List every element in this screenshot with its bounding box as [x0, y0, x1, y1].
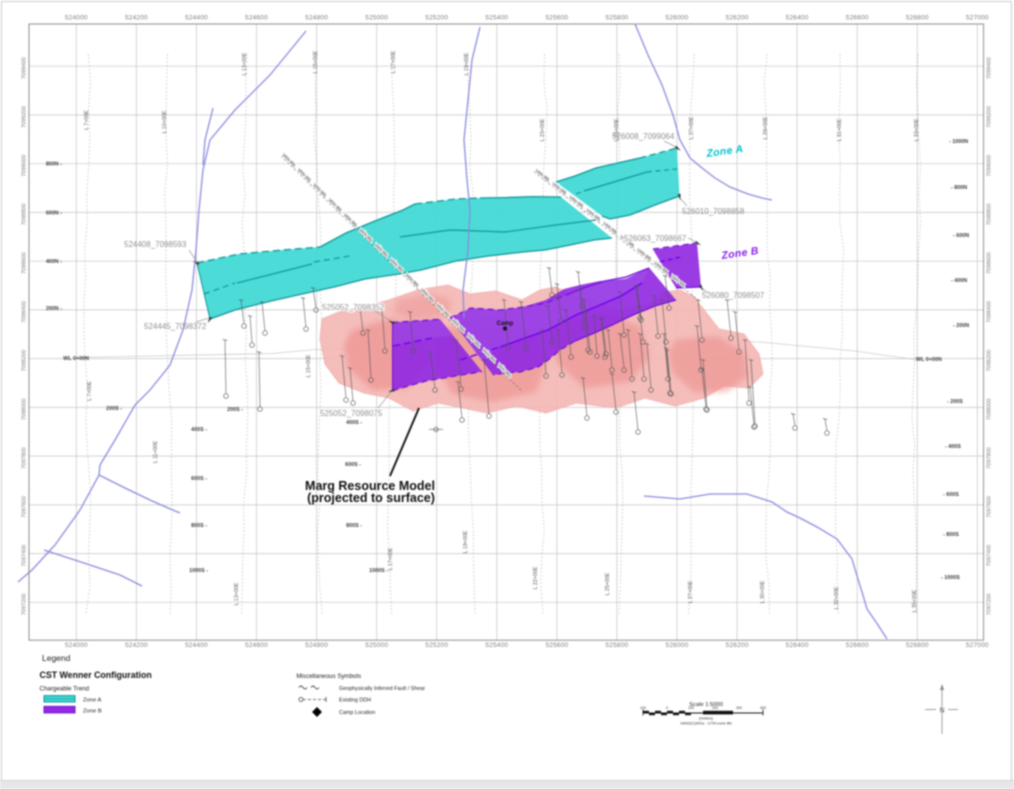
svg-text:525600: 525600 [545, 642, 568, 649]
svg-text:L 17+00E: L 17+00E [391, 50, 397, 73]
svg-text:7099200: 7099200 [21, 106, 27, 128]
svg-text:525400: 525400 [485, 642, 508, 649]
svg-text:CST Wenner Configuration: CST Wenner Configuration [40, 670, 152, 680]
svg-text:L 25+00E: L 25+00E [605, 572, 611, 595]
svg-text:Existing DDH: Existing DDH [339, 698, 371, 704]
svg-text:- 800S: - 800S [943, 532, 959, 538]
svg-text:526200: 526200 [726, 642, 749, 649]
svg-text:526000: 526000 [666, 642, 689, 649]
svg-text:VAN2(C)WGs - UTM zone 8N: VAN2(C)WGs - UTM zone 8N [680, 721, 732, 726]
svg-text:7098600: 7098600 [987, 252, 993, 274]
svg-text:L 33+00E: L 33+00E [914, 118, 920, 141]
svg-text:525400: 525400 [485, 15, 508, 22]
svg-text:7098800: 7098800 [986, 204, 992, 226]
svg-text:600S -: 600S - [345, 462, 361, 468]
svg-text:400S -: 400S - [346, 420, 362, 426]
svg-text:7098400: 7098400 [22, 301, 28, 323]
svg-text:525000: 525000 [365, 642, 388, 649]
svg-text:L 7+00E: L 7+00E [87, 381, 93, 401]
svg-text:524400: 524400 [185, 642, 208, 649]
svg-text:L 32+00E: L 32+00E [834, 586, 840, 609]
svg-text:7099000: 7099000 [22, 155, 28, 177]
svg-text:524200: 524200 [125, 15, 148, 22]
svg-text:L 11+00E: L 11+00E [153, 440, 159, 463]
svg-text:- 600S: - 600S [943, 492, 959, 498]
svg-text:L 29+00E: L 29+00E [763, 116, 769, 139]
svg-text:7099200: 7099200 [986, 106, 992, 128]
svg-text:L 7+00E: L 7+00E [84, 110, 90, 130]
svg-text:7097400: 7097400 [22, 545, 28, 567]
svg-text:526063_7098667: 526063_7098667 [624, 234, 687, 243]
svg-text:524200: 524200 [125, 642, 148, 649]
svg-text:524800: 524800 [305, 642, 328, 649]
svg-text:524000: 524000 [65, 642, 88, 649]
svg-text:526400: 526400 [786, 15, 809, 22]
svg-text:L 10+00E: L 10+00E [162, 110, 168, 133]
svg-text:L 15+00E: L 15+00E [313, 50, 319, 73]
svg-text:400N -: 400N - [46, 259, 62, 265]
svg-text:526400: 526400 [786, 642, 809, 649]
svg-text:525000: 525000 [365, 15, 388, 22]
svg-text:7098000: 7098000 [987, 398, 993, 420]
svg-text:526800: 526800 [906, 15, 929, 22]
svg-text:524408_7098593: 524408_7098593 [124, 240, 187, 249]
svg-text:7097600: 7097600 [987, 496, 993, 518]
svg-text:7099000: 7099000 [987, 155, 993, 177]
svg-text:7099400: 7099400 [22, 57, 28, 79]
svg-text:100: 100 [640, 706, 646, 710]
svg-text:Camp: Camp [497, 321, 514, 327]
svg-text:7097600: 7097600 [22, 496, 28, 518]
svg-text:7098200: 7098200 [21, 350, 27, 372]
svg-text:200S -: 200S - [227, 407, 243, 413]
svg-text:Zone B: Zone B [83, 708, 102, 714]
svg-text:7098000: 7098000 [22, 398, 28, 420]
svg-text:526008_7099064: 526008_7099064 [612, 132, 675, 141]
svg-text:Legend: Legend [42, 653, 71, 663]
svg-text:L 13+00E: L 13+00E [234, 582, 240, 605]
svg-text:400: 400 [760, 706, 766, 710]
svg-text:7097800: 7097800 [986, 447, 992, 469]
svg-text:525200: 525200 [425, 15, 448, 22]
svg-text:1000S -: 1000S - [189, 568, 208, 574]
svg-text:200: 200 [712, 706, 718, 710]
svg-text:L 15+00E: L 15+00E [306, 354, 312, 377]
svg-text:L 30+00E: L 30+00E [760, 580, 766, 603]
svg-text:800N -: 800N - [46, 162, 62, 168]
svg-text:7097200: 7097200 [21, 593, 27, 615]
svg-text:800S -: 800S - [346, 523, 362, 529]
svg-text:400S -: 400S - [191, 427, 207, 433]
svg-text:525052_7098075: 525052_7098075 [320, 409, 383, 418]
svg-text:Zone A: Zone A [83, 698, 102, 704]
svg-text:300: 300 [736, 706, 742, 710]
svg-text:525800: 525800 [605, 642, 628, 649]
svg-text:7097400: 7097400 [987, 545, 993, 567]
svg-text:L 13+00E: L 13+00E [242, 52, 248, 75]
svg-text:600S -: 600S - [191, 476, 207, 482]
svg-text:0: 0 [666, 706, 668, 710]
svg-text:527000: 527000 [966, 642, 989, 649]
svg-text:L 22+00E: L 22+00E [533, 566, 539, 589]
svg-text:7098400: 7098400 [987, 301, 993, 323]
svg-text:- 200S: - 200S [947, 399, 963, 405]
svg-text:- 400S: - 400S [945, 444, 961, 450]
svg-text:L 17+00E: L 17+00E [388, 547, 394, 570]
svg-text:525052_7098352: 525052_7098352 [322, 303, 385, 312]
svg-text:526080_7098507: 526080_7098507 [702, 291, 765, 300]
svg-text:7099400: 7099400 [987, 57, 993, 79]
svg-text:7098200: 7098200 [986, 350, 992, 372]
svg-text:524400: 524400 [185, 15, 208, 22]
svg-text:800S -: 800S - [191, 523, 207, 529]
svg-text:- 600N: - 600N [953, 233, 969, 239]
svg-text:- 1000S: - 1000S [941, 575, 960, 581]
svg-text:525600: 525600 [545, 15, 568, 22]
svg-text:Chargeable Trend: Chargeable Trend [40, 686, 90, 693]
svg-text:524000: 524000 [65, 15, 88, 22]
svg-text:524445_7098372: 524445_7098372 [144, 322, 207, 331]
svg-text:525800: 525800 [605, 15, 628, 22]
svg-text:L 27+00E: L 27+00E [688, 580, 694, 603]
svg-text:524600: 524600 [245, 642, 268, 649]
svg-text:100: 100 [688, 706, 694, 710]
svg-text:7098600: 7098600 [22, 252, 28, 274]
svg-text:526010_7098858: 526010_7098858 [682, 207, 745, 216]
svg-text:- 800N: - 800N [951, 185, 967, 191]
svg-text:N: N [939, 708, 944, 715]
svg-text:WL 0+00N: WL 0+00N [916, 357, 942, 363]
svg-text:L 35+00E: L 35+00E [912, 589, 918, 612]
svg-text:524800: 524800 [305, 15, 328, 22]
svg-text:(projected to surface): (projected to surface) [307, 491, 435, 505]
svg-text:7097200: 7097200 [986, 593, 992, 615]
svg-text:- 1000N: - 1000N [949, 139, 968, 145]
svg-text:526000: 526000 [666, 15, 689, 22]
svg-text:1000S -: 1000S - [369, 568, 388, 574]
svg-text:7097800: 7097800 [21, 447, 27, 469]
svg-text:L 23+00E: L 23+00E [540, 118, 546, 141]
svg-text:526600: 526600 [846, 15, 869, 22]
svg-text:200N -: 200N - [46, 306, 62, 312]
svg-text:7098800: 7098800 [21, 204, 27, 226]
svg-text:L 31+00E: L 31+00E [837, 118, 843, 141]
svg-text:Miscellaneous Symbols: Miscellaneous Symbols [296, 673, 361, 680]
svg-text:526600: 526600 [846, 642, 869, 649]
svg-text:L 19+00E: L 19+00E [463, 530, 469, 553]
svg-text:Geophysically Inferred Fault /: Geophysically Inferred Fault / Shear [339, 686, 425, 692]
svg-text:L 19+00E: L 19+00E [464, 52, 470, 75]
svg-text:L 27+00E: L 27+00E [689, 116, 695, 139]
svg-text:200S -: 200S - [106, 406, 122, 412]
svg-text:526200: 526200 [726, 15, 749, 22]
svg-text:WL 0+00N: WL 0+00N [63, 356, 89, 362]
svg-text:527000: 527000 [966, 15, 989, 22]
svg-text:- 400N: - 400N [951, 278, 967, 284]
svg-text:524600: 524600 [245, 15, 268, 22]
svg-text:600N -: 600N - [46, 211, 62, 217]
svg-text:- 200N: - 200N [953, 323, 969, 329]
svg-text:Camp Location: Camp Location [339, 710, 375, 716]
svg-text:525200: 525200 [425, 642, 448, 649]
svg-text:526800: 526800 [906, 642, 929, 649]
